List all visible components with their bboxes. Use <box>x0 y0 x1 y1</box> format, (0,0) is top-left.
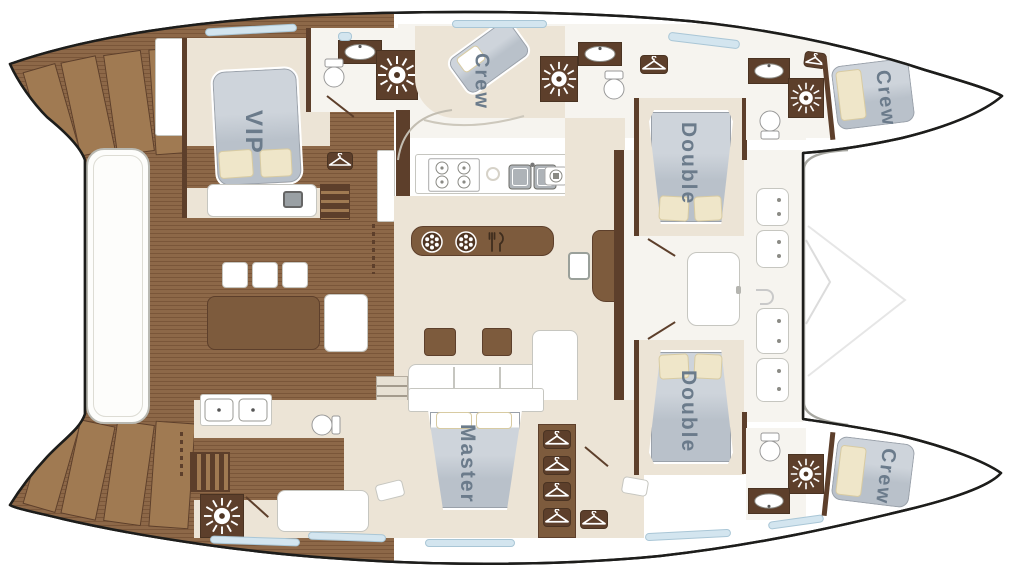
cockpit-seat-back <box>282 262 308 288</box>
salon-stool <box>424 328 456 356</box>
master-label-text: Master <box>455 424 479 504</box>
master-chaise <box>277 490 369 532</box>
double-bottom-label-text: Double <box>676 370 700 453</box>
table-latch <box>736 286 741 294</box>
counter-circle <box>486 167 500 181</box>
hanger-icon <box>544 509 570 526</box>
toilet-icon <box>320 58 348 88</box>
step <box>148 421 195 530</box>
button-dot <box>777 339 781 343</box>
vanity-topright <box>748 58 790 84</box>
stove-icon <box>428 158 480 192</box>
aft-sunpad <box>86 148 150 424</box>
shower-mid <box>540 56 578 102</box>
hull-window <box>338 32 352 41</box>
shower-icon <box>541 61 577 97</box>
wardrobe-tile <box>543 508 571 527</box>
hull-ladder <box>190 452 230 492</box>
double-bottom-label: Double <box>674 362 702 462</box>
hanger-icon <box>544 457 570 474</box>
nav-chair <box>568 252 590 280</box>
button-dot <box>777 319 781 323</box>
hanger-icon <box>641 56 667 73</box>
galley-counter <box>415 154 575 194</box>
port-hull-stairs <box>320 184 350 220</box>
button-dot <box>777 212 781 216</box>
sink-icon <box>750 61 788 81</box>
crew-mid-label-text: Crew <box>470 53 493 110</box>
seat-cushion <box>756 230 789 268</box>
vanity-mid <box>578 42 622 66</box>
shower-icon <box>377 55 417 95</box>
shower-topright <box>788 78 824 118</box>
hanger-icon <box>544 483 570 500</box>
wardrobe-tile <box>543 456 571 475</box>
vanity-bottomright <box>748 488 790 514</box>
button-dot <box>777 240 781 244</box>
vip-label: VIP <box>238 82 268 182</box>
double-top-label: Double <box>674 114 702 214</box>
companionway-arrow <box>180 432 183 476</box>
cockpit-seat-back <box>252 262 278 288</box>
seat-cushion <box>756 188 789 226</box>
sunpad-inner-line <box>93 155 143 417</box>
crew-top-label-text: Crew <box>870 68 900 127</box>
master-headboard <box>408 388 544 412</box>
toilet-icon <box>600 70 628 100</box>
wardrobe-tile <box>640 55 668 74</box>
seat-cushion <box>756 358 789 402</box>
wardrobe-tile <box>580 510 608 529</box>
button-dot <box>777 387 781 391</box>
toilet-icon <box>311 411 341 439</box>
master-shower <box>200 494 244 538</box>
shower-bottomright <box>788 454 824 494</box>
wardrobe-tile <box>543 482 571 501</box>
vip-wall <box>182 38 187 218</box>
hanger-icon <box>544 431 570 448</box>
fridge <box>377 150 395 222</box>
double-top-wall <box>634 98 639 236</box>
hull-window <box>645 529 731 541</box>
double-top-label-text: Double <box>676 122 700 205</box>
cutlery-icon <box>486 231 508 253</box>
hull-window <box>425 539 515 547</box>
shower-icon <box>790 82 822 114</box>
button-dot <box>777 254 781 258</box>
hull-window <box>452 20 547 28</box>
vent-wheel-icon <box>454 230 478 254</box>
cockpit-table <box>207 296 320 350</box>
cockpit-seat-back <box>222 262 248 288</box>
vip-label-text: VIP <box>239 110 267 155</box>
master-vanity <box>200 394 272 426</box>
wardrobe-tile <box>327 152 353 170</box>
sink-icon <box>580 44 620 64</box>
button-dot <box>777 369 781 373</box>
toilet-icon <box>756 110 784 140</box>
wardrobe-tile <box>543 430 571 449</box>
hanger-icon <box>328 153 352 169</box>
vent-wheel-icon <box>420 230 444 254</box>
double-sink-icon <box>203 397 269 423</box>
double-bottom-wall <box>634 340 639 475</box>
shower-icon <box>203 497 241 535</box>
vip-tv <box>283 191 303 208</box>
cockpit-bench <box>324 294 368 352</box>
galley-island <box>411 226 554 256</box>
crew-bottom-label-text: Crew <box>870 446 900 505</box>
companionway-arrow <box>372 224 375 274</box>
button-dot <box>777 198 781 202</box>
fwd-cockpit-table <box>687 252 740 326</box>
sink-icon <box>750 491 788 511</box>
seat-cushion <box>756 308 789 354</box>
salon-stool <box>482 328 512 356</box>
toilet-icon <box>756 432 784 462</box>
deck-plan: VIP <box>0 0 1024 576</box>
shower-icon <box>790 458 822 490</box>
crew-mid-label: Crew <box>468 44 494 118</box>
master-label: Master <box>452 420 482 508</box>
hanger-icon <box>581 511 607 528</box>
vip-bath-wall <box>306 28 311 112</box>
vip-shower <box>376 50 418 100</box>
